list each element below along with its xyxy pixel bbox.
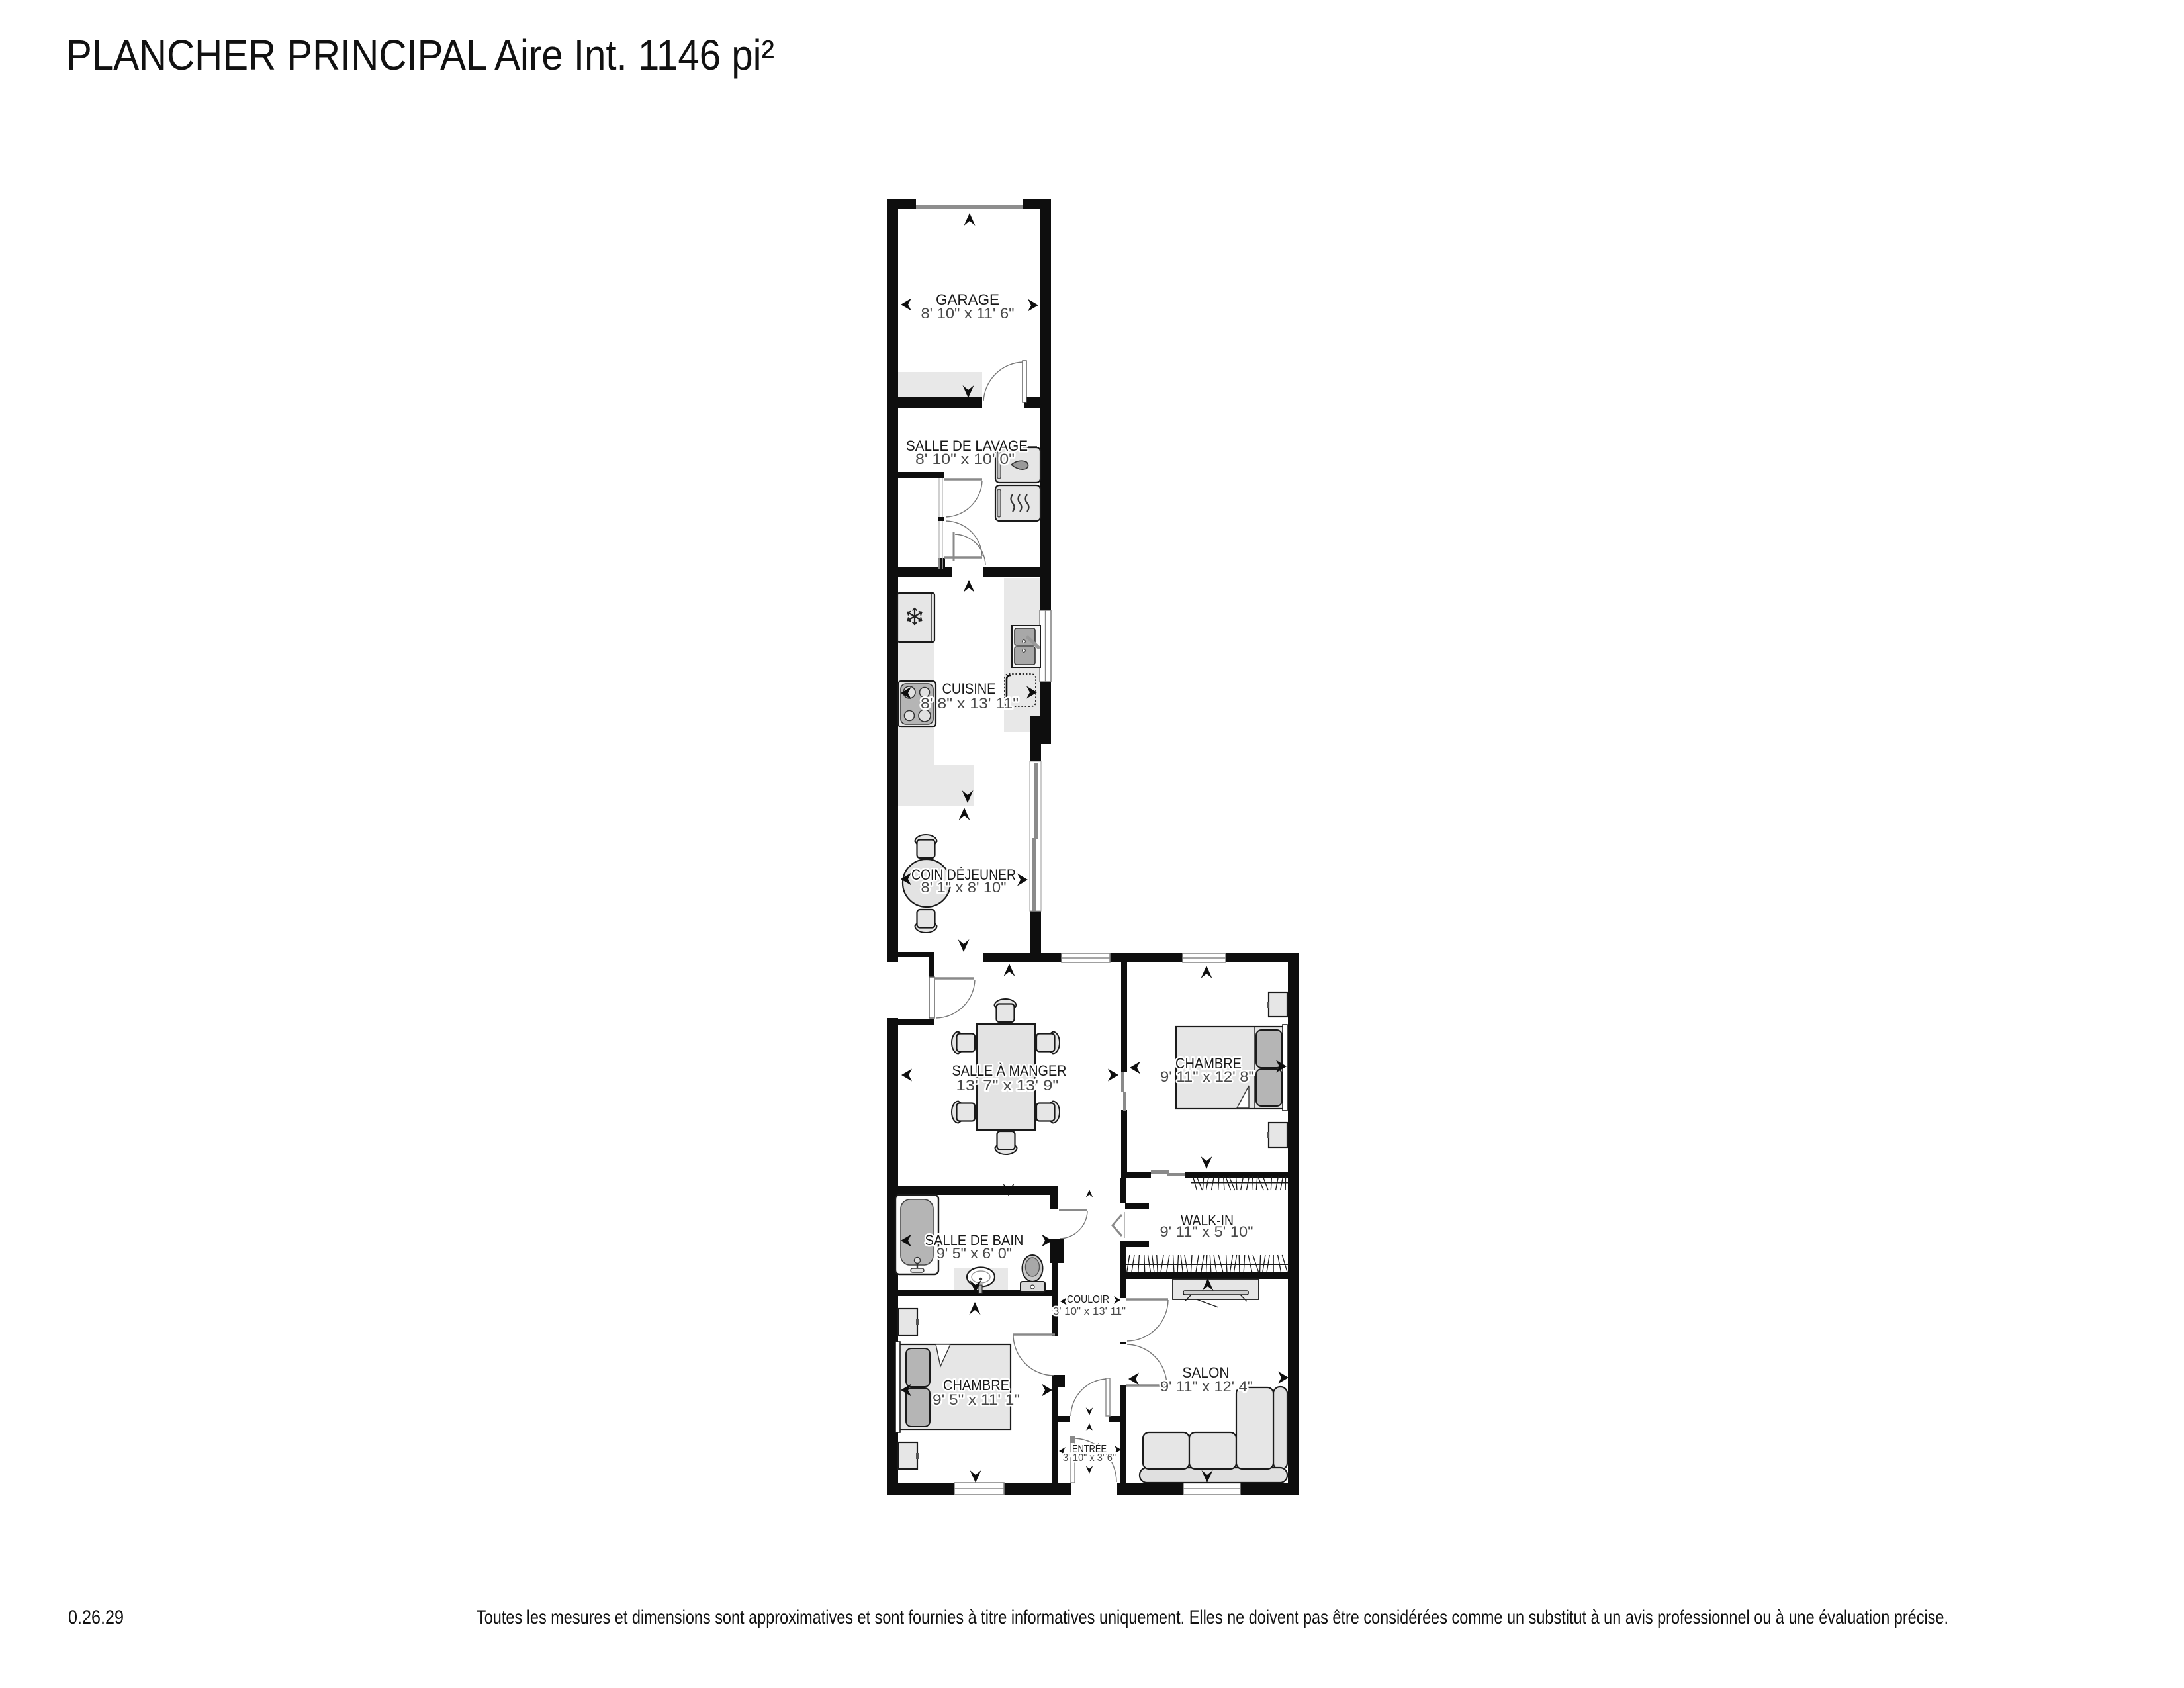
svg-text:3' 10" x 13' 11": 3' 10" x 13' 11" xyxy=(1053,1306,1126,1317)
svg-text:9' 11" x 5' 10": 9' 11" x 5' 10" xyxy=(1160,1223,1253,1240)
svg-text:8' 10" x 11' 6": 8' 10" x 11' 6" xyxy=(921,305,1015,322)
svg-text:9' 5" x 6' 0": 9' 5" x 6' 0" xyxy=(936,1245,1012,1262)
svg-text:9' 11" x 12' 4": 9' 11" x 12' 4" xyxy=(1160,1378,1253,1395)
svg-text:COULOIR: COULOIR xyxy=(1067,1294,1109,1305)
svg-text:8' 8" x 13' 11": 8' 8" x 13' 11" xyxy=(921,695,1019,712)
svg-text:13' 7" x 13' 9": 13' 7" x 13' 9" xyxy=(956,1077,1059,1094)
svg-text:8' 10" x 10' 0": 8' 10" x 10' 0" xyxy=(915,451,1015,467)
svg-text:9' 11" x 12' 8": 9' 11" x 12' 8" xyxy=(1160,1068,1254,1085)
svg-text:0.26.29: 0.26.29 xyxy=(68,1607,124,1628)
svg-text:PLANCHER PRINCIPAL Aire Int. 1: PLANCHER PRINCIPAL Aire Int. 1146 pi² xyxy=(66,31,774,79)
svg-text:9' 5" x 11' 1": 9' 5" x 11' 1" xyxy=(933,1391,1020,1408)
svg-text:8' 1" x 8' 10": 8' 1" x 8' 10" xyxy=(921,879,1007,896)
svg-text:3' 10" x 3' 6": 3' 10" x 3' 6" xyxy=(1063,1452,1116,1464)
svg-text:Toutes les mesures et dimensio: Toutes les mesures et dimensions sont ap… xyxy=(477,1607,1948,1628)
